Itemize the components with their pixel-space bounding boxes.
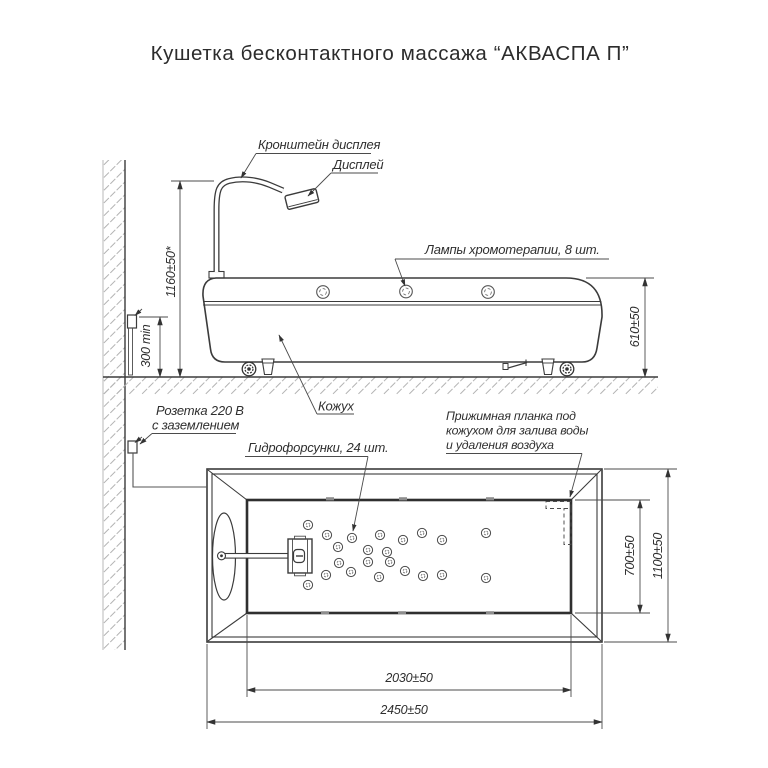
- nozzle: [398, 535, 407, 544]
- svg-text:с заземлением: с заземлением: [152, 418, 239, 433]
- basin-ticks: [321, 497, 494, 614]
- nozzle: [417, 528, 426, 537]
- nozzle: [334, 558, 343, 567]
- nozzle-center: [349, 570, 353, 574]
- power-cord-plan: [133, 453, 207, 487]
- nozzle-center: [421, 574, 425, 578]
- drawing-sheet: Кушетка бесконтактного массажа “АКВАСПА …: [0, 0, 768, 768]
- nozzle: [400, 566, 409, 575]
- nozzle-center: [484, 576, 488, 580]
- nozzle-center: [337, 561, 341, 565]
- nozzle-center: [336, 545, 340, 549]
- dim-2030: 2030±50: [384, 671, 432, 685]
- nozzle-center: [366, 548, 370, 552]
- svg-text:Розетка 220 В: Розетка 220 В: [156, 403, 244, 418]
- dimension-overall-width: 1100±50: [604, 469, 677, 642]
- display: [285, 188, 319, 209]
- svg-text:Дисплей: Дисплей: [331, 157, 383, 172]
- svg-text:и удаления воздуха: и удаления воздуха: [446, 438, 554, 452]
- nozzle: [374, 572, 383, 581]
- svg-text:Гидрофорсунки, 24 шт.: Гидрофорсунки, 24 шт.: [248, 440, 388, 455]
- nozzle-center: [366, 560, 370, 564]
- nozzle-center: [325, 533, 329, 537]
- nozzle-carriage: [288, 536, 312, 576]
- nozzle: [385, 557, 394, 566]
- nozzle: [333, 542, 342, 551]
- nozzle: [418, 571, 427, 580]
- dim-700: 700±50: [623, 536, 637, 577]
- svg-text:Кожух: Кожух: [318, 399, 354, 414]
- nozzle-center: [385, 550, 389, 554]
- caster-wheel-right: [560, 362, 574, 376]
- dimension-basin-length: 2030±50: [247, 615, 571, 697]
- nozzle-center: [403, 569, 407, 573]
- nozzle: [303, 580, 312, 589]
- nozzle-center: [401, 538, 405, 542]
- nozzle: [321, 570, 330, 579]
- nozzle-center: [440, 538, 444, 542]
- nozzle: [481, 528, 490, 537]
- nozzle-center: [350, 536, 354, 540]
- nozzle-center: [420, 531, 424, 535]
- dim-610: 610±50: [628, 307, 642, 348]
- support-foot-left: [262, 359, 274, 375]
- drawing-title: Кушетка бесконтактного массажа “АКВАСПА …: [151, 42, 630, 65]
- dimension-basin-width: 700±50: [575, 500, 650, 613]
- svg-text:кожухом для залива воды: кожухом для залива воды: [446, 424, 588, 438]
- svg-text:Лампы хромотерапии, 8 шт.: Лампы хромотерапии, 8 шт.: [424, 242, 600, 257]
- dimension-overall-length: 2450±50: [207, 644, 602, 729]
- label-pressure-strip: Прижимная планка под кожухом для залива …: [446, 409, 588, 497]
- support-foot-right: [542, 359, 554, 375]
- label-nozzles: Гидрофорсунки, 24 шт.: [245, 440, 388, 531]
- nozzle-center: [324, 573, 328, 577]
- power-socket-plan: [128, 437, 142, 453]
- nozzle: [347, 533, 356, 542]
- nozzle: [322, 530, 331, 539]
- nozzle-center: [378, 533, 382, 537]
- nozzle: [481, 573, 490, 582]
- nozzle-center: [440, 573, 444, 577]
- nozzle: [363, 557, 372, 566]
- nozzle: [382, 547, 391, 556]
- caster-wheel-left: [242, 362, 256, 376]
- svg-text:Прижимная планка под: Прижимная планка под: [446, 409, 576, 423]
- dim-2450: 2450±50: [379, 703, 427, 717]
- nozzle: [346, 567, 355, 576]
- plan-view: 700±50 1100±50 2030±50 2450±50 Гидрофорс…: [128, 409, 677, 729]
- pressure-strip-dashed: [546, 502, 571, 545]
- floor-hatch: [103, 377, 658, 395]
- nozzle: [303, 520, 312, 529]
- hydro-nozzles: [303, 520, 490, 589]
- dimension-display-height: 1160±50*: [164, 181, 214, 377]
- nozzle: [363, 545, 372, 554]
- nozzle-center: [306, 583, 310, 587]
- nozzle-center: [484, 531, 488, 535]
- label-socket: Розетка 220 В с заземлением: [140, 403, 244, 444]
- dim-300: 300 min: [139, 324, 153, 367]
- nozzle-center: [306, 523, 310, 527]
- nozzle: [437, 570, 446, 579]
- wall-hatch: [103, 160, 125, 650]
- nozzle-center: [377, 575, 381, 579]
- dim-1160: 1160±50*: [164, 245, 178, 297]
- display-arm: [209, 179, 283, 278]
- dim-1100: 1100±50: [651, 533, 665, 579]
- svg-text:Кронштейн дисплея: Кронштейн дисплея: [258, 137, 381, 152]
- nozzle-center: [388, 560, 392, 564]
- dimension-socket-height: 300 min: [139, 317, 168, 377]
- technical-drawing: Кушетка бесконтактного массажа “АКВАСПА …: [0, 0, 768, 768]
- label-display: Дисплей: [308, 157, 383, 196]
- nozzle: [375, 530, 384, 539]
- nozzle: [437, 535, 446, 544]
- carriage-rail: [218, 552, 289, 560]
